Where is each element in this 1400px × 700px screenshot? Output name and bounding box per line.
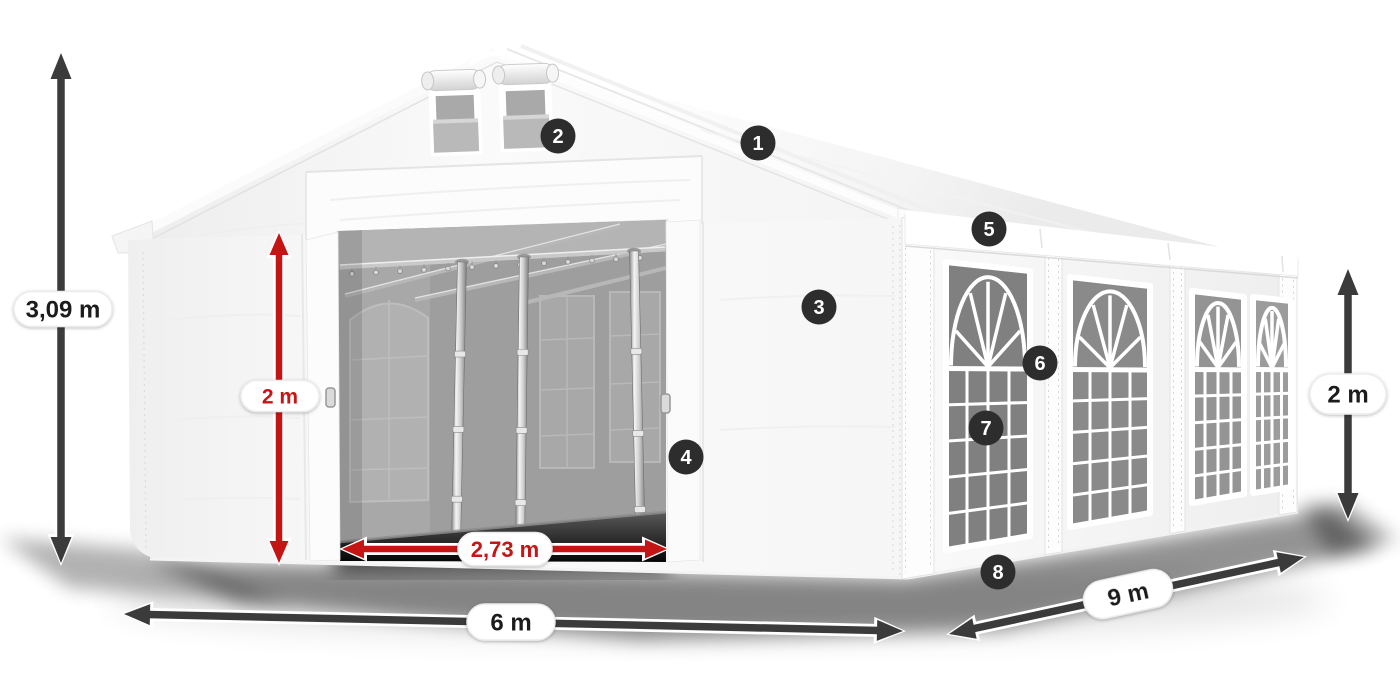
callout-badge-7[interactable]: 7: [969, 411, 1004, 446]
side-height-value: 2 m: [1327, 382, 1368, 409]
callout-badge-4[interactable]: 4: [669, 440, 704, 475]
side-strap-1: [902, 217, 934, 579]
door-handle-left: [326, 388, 335, 407]
callout-number: 1: [752, 133, 763, 155]
callout-badge-5[interactable]: 5: [972, 212, 1007, 247]
door-opening-interior: [330, 215, 675, 570]
callout-number: 4: [680, 447, 692, 469]
total-height-value: 3,09 m: [26, 297, 101, 324]
side-height-label: 2 m: [1310, 374, 1386, 414]
side-window-4: [1253, 297, 1291, 493]
side-strap-2: [1045, 234, 1062, 555]
side-window-2: [1070, 277, 1150, 527]
total-height-label: 3,09 m: [14, 292, 112, 327]
roof-vent-left: [421, 69, 488, 153]
side-window-3: [1192, 291, 1244, 503]
callout-badge-6[interactable]: 6: [1023, 346, 1058, 381]
tent-dimension-diagram: 3,09 m 2 m 2,73 m 6 m 9 m 2 m 12345678: [0, 0, 1400, 700]
callout-badge-3[interactable]: 3: [802, 290, 837, 325]
callout-badge-2[interactable]: 2: [541, 119, 576, 154]
callout-badge-1[interactable]: 1: [741, 126, 776, 161]
callout-number: 2: [552, 126, 563, 148]
front-width-value: 6 m: [490, 610, 531, 637]
door-height-value: 2 m: [262, 386, 298, 409]
callout-number: 8: [992, 562, 1003, 584]
side-strap-3: [1170, 248, 1185, 534]
door-height-label: 2 m: [241, 381, 319, 412]
front-width-label: 6 m: [467, 604, 555, 640]
door-handle-right: [661, 394, 670, 413]
tent-illustration: [112, 46, 1298, 579]
callout-number: 5: [983, 219, 994, 241]
door-width-label: 2,73 m: [458, 533, 552, 566]
callout-number: 3: [813, 297, 824, 319]
callout-number: 7: [980, 418, 991, 440]
callout-badge-8[interactable]: 8: [981, 555, 1016, 590]
callout-number: 6: [1034, 353, 1045, 375]
side-window-1: [946, 262, 1030, 550]
door-width-value: 2,73 m: [471, 537, 540, 562]
